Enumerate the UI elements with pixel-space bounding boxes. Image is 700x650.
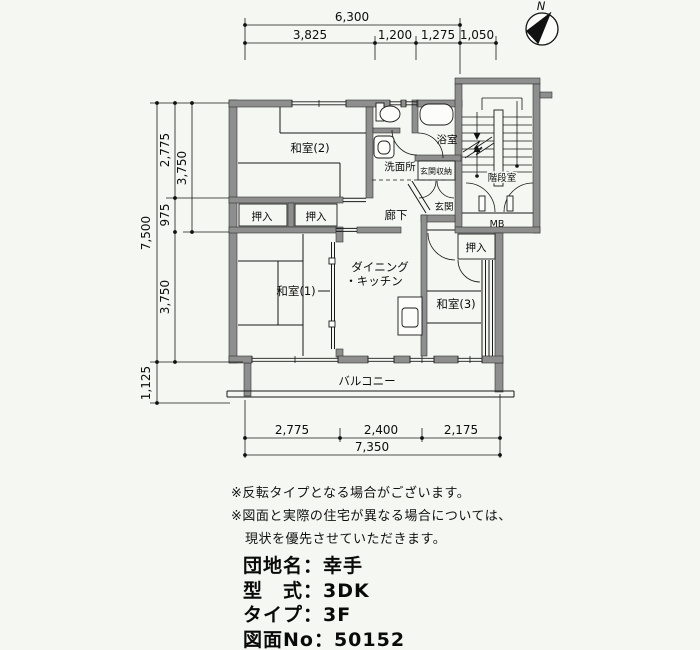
toilet xyxy=(376,103,400,122)
info-floor-type: タイプ：3F xyxy=(243,603,405,628)
room-label-washitsu1: 和室(1) xyxy=(276,284,315,298)
entrance-diagonal-wall xyxy=(408,181,430,213)
dimension-lines xyxy=(150,18,502,458)
dim-bottom-seg-1: 2,400 xyxy=(364,423,398,437)
notes: ※反転タイプとなる場合がございます。 ※図面と実際の住宅が異なる場合については、… xyxy=(231,482,512,551)
dim-bottom-seg-2: 2,175 xyxy=(444,423,478,437)
dim-left-total: 7,500 xyxy=(139,216,153,250)
dim-left-seg-0: 2,775 xyxy=(158,133,172,167)
dim-left-balcony: 1,125 xyxy=(139,366,153,400)
dim-left-seg-2: 3,750 xyxy=(158,280,172,314)
compass: N xyxy=(526,0,558,45)
room-label-balcony: バルコニー xyxy=(338,374,395,388)
room-label-washitsu3: 和室(3) xyxy=(436,297,475,311)
info-drawing-no: 図面No：50152 xyxy=(243,628,405,650)
room-label-mb: MB xyxy=(490,219,505,230)
room-label-dining-2: ・キッチン xyxy=(345,274,403,288)
dim-bottom-seg-0: 2,775 xyxy=(275,423,309,437)
note-line-2: ※図面と実際の住宅が異なる場合については、 xyxy=(231,505,512,528)
room-label-senmenjo: 洗面所 xyxy=(384,161,416,173)
walls xyxy=(229,78,552,396)
balcony-rail xyxy=(227,391,514,397)
info-layout-type: 型 式：3DK xyxy=(243,579,405,604)
room-label-oshiire-2: 押入 xyxy=(306,210,327,223)
room-label-rouka: 廊下 xyxy=(385,208,408,222)
room-label-washitsu2: 和室(2) xyxy=(290,141,329,155)
washbasin xyxy=(374,136,394,158)
room-label-oshiire-3: 押入 xyxy=(466,241,487,254)
dim-left-seg-1: 975 xyxy=(158,204,172,227)
dim-top-seg-3: 1,050 xyxy=(460,28,494,42)
floorplan-page: N 6,300 3,825 1,200 1,275 1,050 7,500 2,… xyxy=(0,0,700,650)
compass-north-label: N xyxy=(537,0,546,13)
room-label-dining-1: ダイニング xyxy=(351,260,409,274)
info-block: 団地名：幸手 型 式：3DK タイプ：3F 図面No：50152 xyxy=(243,554,405,650)
kitchen-sink-unit xyxy=(398,297,422,335)
dim-bottom-total: 7,350 xyxy=(355,440,389,454)
note-line-1: ※反転タイプとなる場合がございます。 xyxy=(231,482,512,505)
dim-top-seg-2: 1,275 xyxy=(421,28,455,42)
room-label-genkan-shunou: 玄関収納 xyxy=(420,166,452,176)
dim-top-seg-1: 1,200 xyxy=(378,28,412,42)
room-label-genkan: 玄関 xyxy=(434,201,453,213)
room-label-kaidanshitsu: 階段室 xyxy=(488,172,517,184)
dim-top-total: 6,300 xyxy=(335,10,369,24)
info-danchi-name: 団地名：幸手 xyxy=(243,554,405,579)
room-label-oshiire-1: 押入 xyxy=(252,210,273,223)
dim-top-seg-0: 3,825 xyxy=(293,28,327,42)
floor-plan: N 6,300 3,825 1,200 1,275 1,050 7,500 2,… xyxy=(0,0,700,650)
room-label-yokushitsu: 浴室 xyxy=(437,133,458,146)
dim-left-upper-span: 3,750 xyxy=(175,151,189,185)
bathtub xyxy=(420,104,453,125)
note-line-3: 現状を優先させていただきます。 xyxy=(231,528,512,551)
